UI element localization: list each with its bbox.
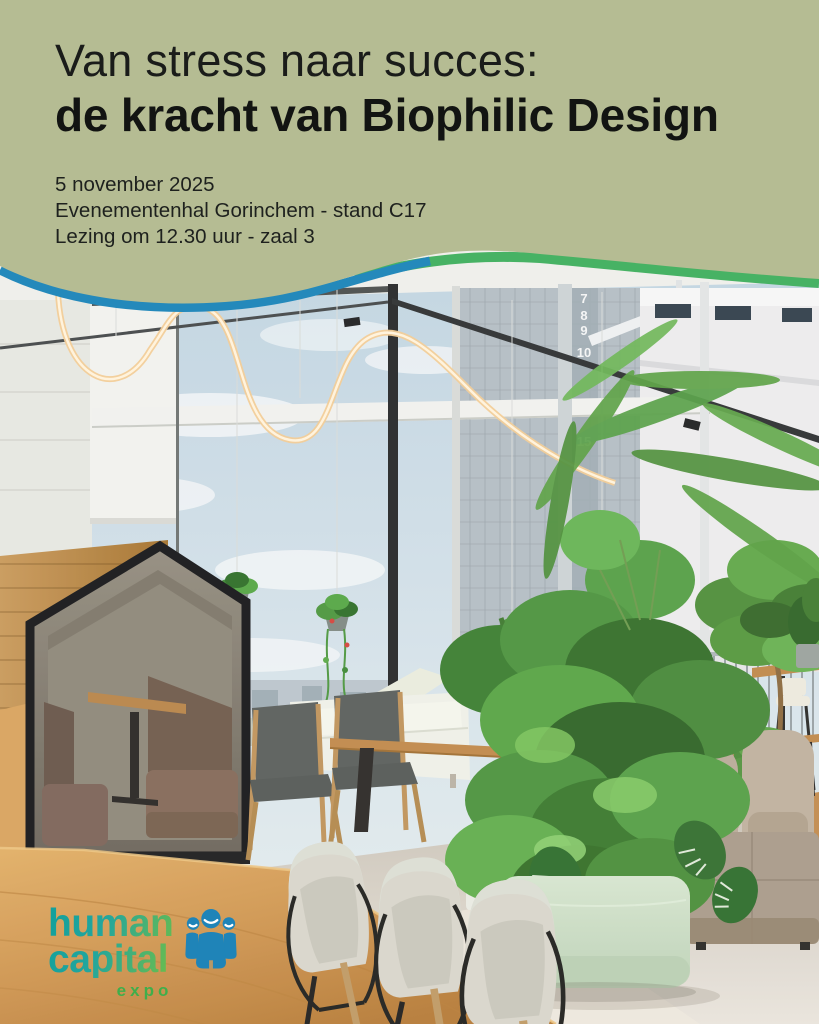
title-line-2: de kracht van Biophilic Design [55,90,775,141]
event-lecture-info: Lezing om 12.30 uur - zaal 3 [55,224,775,250]
logo-word-capital: capital [48,938,168,981]
event-date: 5 november 2025 [55,172,775,198]
people-icon [182,906,240,972]
logo-human-capital-expo: humancapital expo [48,906,240,1001]
event-poster: 7 8 9 10 15 [0,0,819,1024]
logo-wordmark: humancapital expo [48,906,173,1001]
logo-word-expo: expo [117,981,173,1001]
header: Van stress naar succes: de kracht van Bi… [55,36,775,250]
logo-text: humancapital [48,906,173,978]
event-location: Evenementenhal Gorinchem - stand C17 [55,198,775,224]
event-details: 5 november 2025 Evenementenhal Gorinchem… [55,172,775,250]
title-line-1: Van stress naar succes: [55,36,775,86]
people-icon-leg-gap [209,960,213,968]
